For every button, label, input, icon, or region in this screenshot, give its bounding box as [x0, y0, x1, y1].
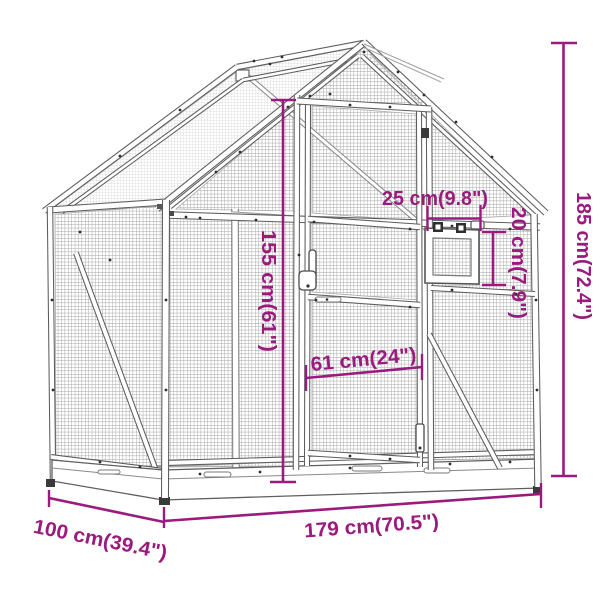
- svg-text:155 cm(61"): 155 cm(61"): [257, 230, 279, 352]
- svg-text:20 cm(7.9"): 20 cm(7.9"): [507, 207, 529, 319]
- svg-text:185 cm(72.4"): 185 cm(72.4"): [572, 192, 594, 320]
- svg-text:25 cm(9.8"): 25 cm(9.8"): [382, 188, 488, 210]
